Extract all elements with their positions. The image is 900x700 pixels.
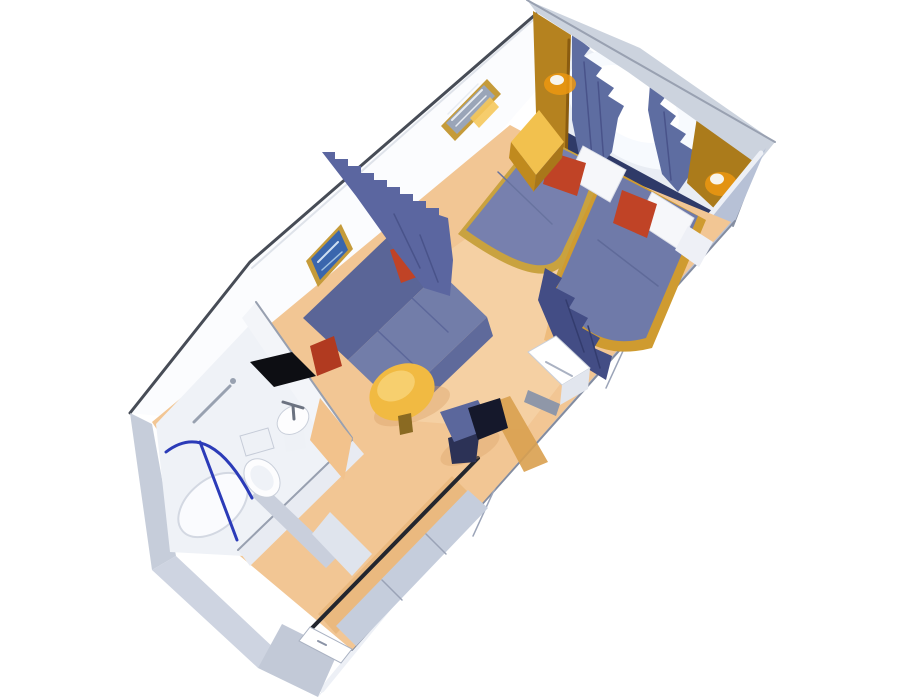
towel-hook	[230, 378, 236, 384]
bath-bottom-outer-wall	[152, 556, 276, 668]
stateroom-3d-floorplan-render	[0, 0, 900, 700]
floorplan-canvas	[0, 0, 900, 700]
sconce-right-lamp	[710, 174, 724, 185]
coffee-table-leg	[398, 413, 413, 435]
faucet-stem	[293, 406, 294, 419]
sconce-left-lamp	[550, 75, 564, 85]
